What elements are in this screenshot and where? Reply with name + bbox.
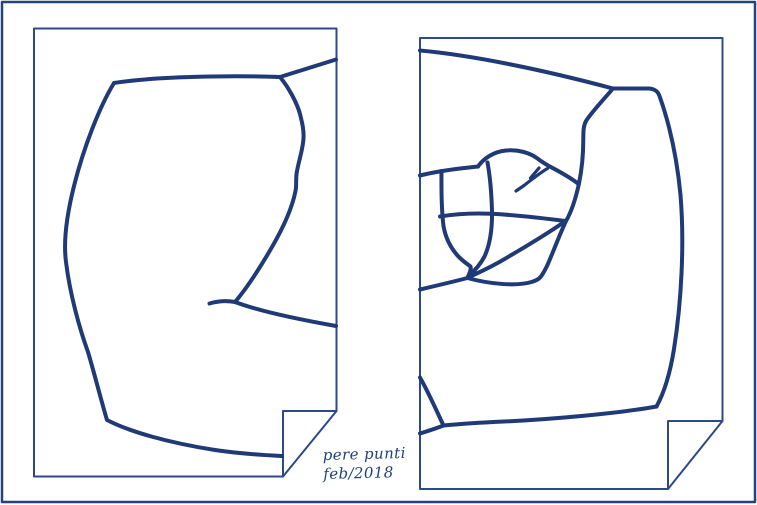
fist-thumb-outer	[441, 171, 470, 278]
fist-finger-line	[440, 214, 566, 221]
signature-date: feb/2018	[323, 463, 407, 484]
fist-thumb-inner	[468, 163, 492, 278]
fist-inner-mark	[516, 169, 548, 192]
left-drawing-stub	[210, 301, 236, 303]
fist-bottom-left-line	[420, 278, 468, 290]
right-drawing-top-curve	[420, 51, 613, 89]
right-drawing-bottom-curve	[444, 407, 657, 426]
signature-name: pere punti	[323, 444, 407, 465]
left-drawing-bottom-exit-curve	[235, 302, 336, 326]
right-drawing-bottom-left-lower-line	[420, 426, 444, 434]
left-drawing-right-branch	[235, 77, 304, 302]
left-drawing-main-outline	[65, 76, 282, 456]
artwork-canvas: pere punti feb/2018	[0, 0, 757, 505]
fist-knuckle-line	[478, 150, 579, 184]
left-drawing-top-exit-line	[280, 60, 336, 78]
fist-bottom-curve	[468, 277, 541, 284]
outer-border	[2, 2, 755, 502]
right-drawing-right-side	[613, 89, 682, 407]
artist-signature: pere punti feb/2018	[323, 444, 407, 484]
left-drawing	[65, 60, 336, 457]
line-drawing-svg	[0, 0, 757, 505]
fist-wrist-line	[420, 167, 478, 176]
right-drawing-bottom-left-upper-line	[420, 378, 444, 426]
right-drawing	[420, 51, 682, 434]
right-sheet-fold-corner-icon	[668, 421, 723, 489]
fist-diagonal-crease	[468, 221, 566, 278]
